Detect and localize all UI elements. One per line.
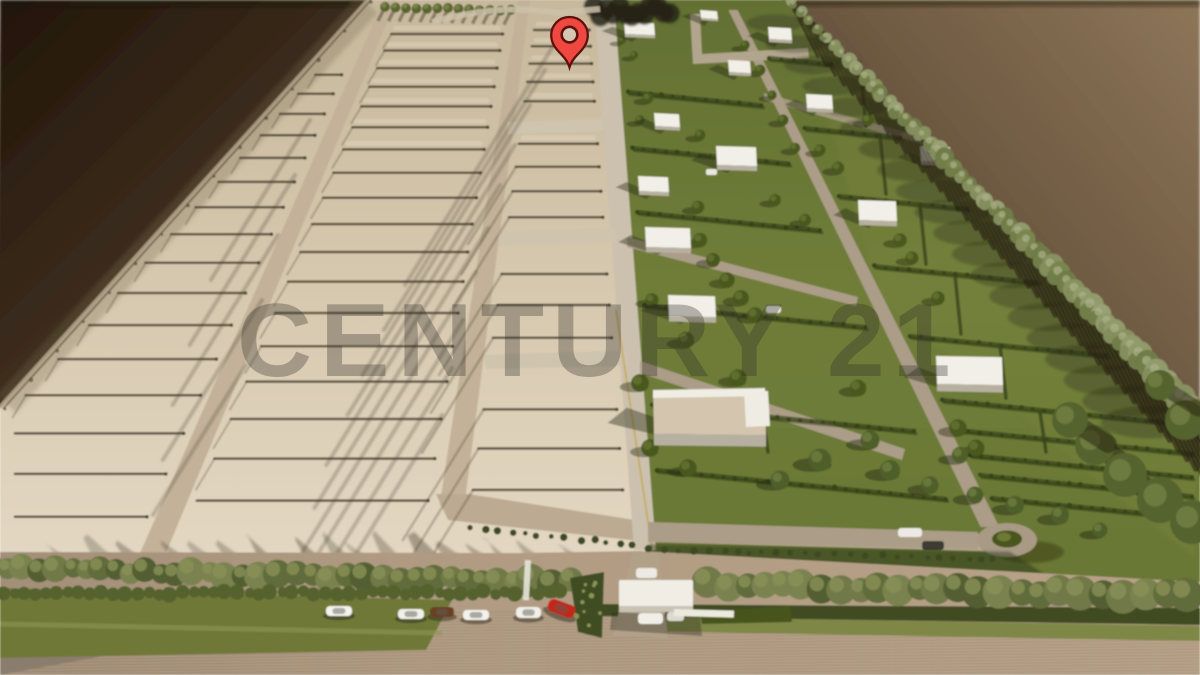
svg-text:CENTURY 21: CENTURY 21 — [237, 283, 959, 399]
